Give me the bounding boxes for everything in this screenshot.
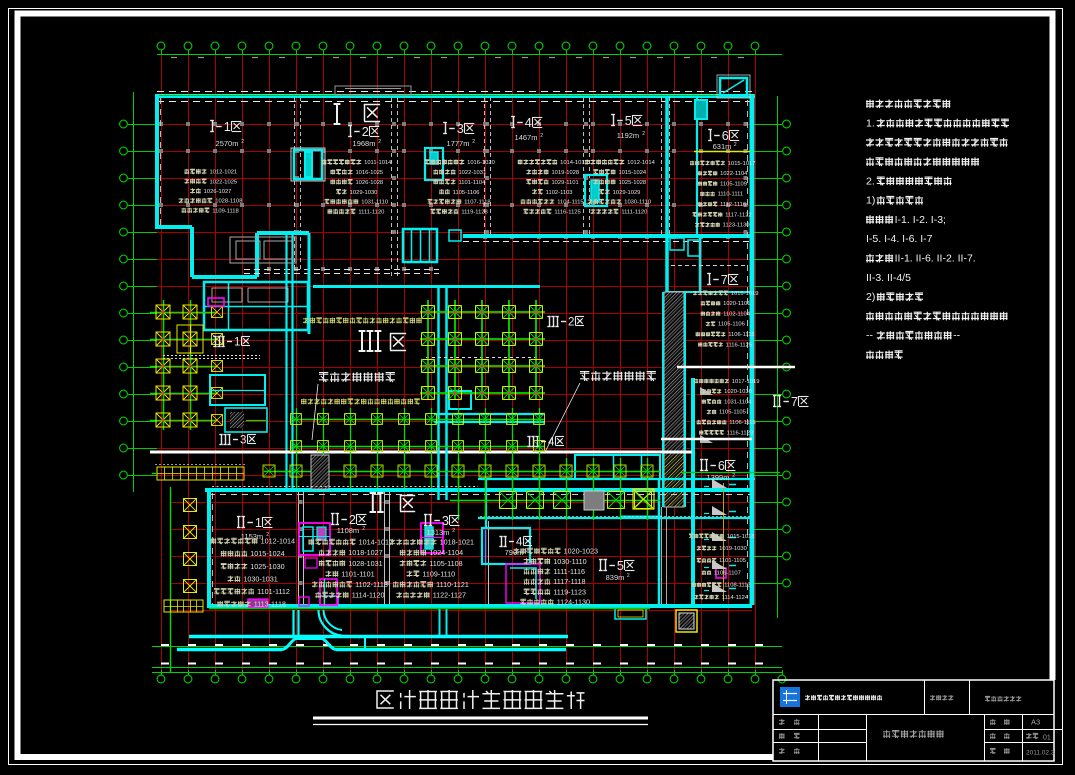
svg-text:1020-1023: 1020-1023	[564, 547, 598, 556]
svg-text:1124-1130: 1124-1130	[557, 598, 590, 607]
svg-text:--: --	[866, 330, 873, 342]
svg-text:1105-1109: 1105-1109	[720, 181, 747, 187]
svg-text:1105-1108: 1105-1108	[429, 559, 462, 568]
svg-text:1014-1018: 1014-1018	[560, 160, 588, 166]
svg-text:1123-1130: 1123-1130	[723, 223, 750, 229]
svg-text:2011.02.3: 2011.02.3	[1026, 750, 1055, 757]
svg-text:1): 1)	[866, 195, 875, 207]
svg-text:1107-1118: 1107-1118	[464, 200, 490, 206]
svg-text:2: 2	[734, 142, 737, 148]
svg-text:2: 2	[627, 573, 630, 579]
svg-text:I-1. I-2. I-3;: I-1. I-2. I-3;	[895, 214, 946, 226]
svg-text:1022-1104: 1022-1104	[720, 171, 748, 177]
svg-text:2: 2	[362, 526, 365, 532]
svg-text:4: 4	[525, 116, 532, 130]
svg-text:2: 2	[568, 317, 574, 329]
svg-text:1119-1128: 1119-1128	[461, 210, 487, 216]
svg-text:1014-1017: 1014-1017	[359, 538, 393, 547]
svg-text:1110-1111: 1110-1111	[718, 192, 744, 198]
svg-text:1030-1110: 1030-1110	[624, 200, 651, 206]
svg-text:1030-1031: 1030-1031	[243, 574, 277, 583]
svg-text:2: 2	[349, 513, 356, 527]
svg-text:1016-1020: 1016-1020	[467, 160, 495, 166]
svg-text:1122-1127: 1122-1127	[433, 591, 466, 600]
svg-text:1111-1120: 1111-1120	[358, 210, 384, 216]
svg-text:1018-1021: 1018-1021	[440, 538, 474, 547]
svg-text:2570m: 2570m	[216, 139, 239, 148]
svg-text:I-5. I-4. I-6. I-7: I-5. I-4. I-6. I-7	[866, 233, 933, 245]
svg-text:1192m: 1192m	[617, 131, 639, 140]
svg-text:1116-1123: 1116-1123	[727, 430, 753, 436]
svg-text:1011-1014: 1011-1014	[364, 160, 392, 166]
svg-text:3: 3	[240, 435, 246, 447]
svg-text:1108m: 1108m	[337, 526, 359, 535]
svg-text:1102-1103: 1102-1103	[546, 190, 573, 196]
svg-text:1108-1113: 1108-1113	[724, 583, 750, 589]
svg-text:1012-1014: 1012-1014	[627, 160, 655, 166]
svg-text:1: 1	[234, 337, 240, 349]
svg-text:1101-1112: 1101-1112	[257, 587, 290, 596]
svg-text:1016-1019: 1016-1019	[731, 291, 759, 297]
svg-text:2: 2	[378, 139, 381, 145]
svg-text:2: 2	[642, 131, 645, 137]
svg-text:1020-1101: 1020-1101	[723, 301, 750, 307]
svg-text:1114-1120: 1114-1120	[352, 591, 385, 600]
svg-text:1116-1125: 1116-1125	[726, 342, 752, 348]
svg-text:4: 4	[516, 537, 523, 549]
svg-text:1031-1104: 1031-1104	[724, 399, 752, 405]
svg-text:1030-1110: 1030-1110	[553, 557, 586, 566]
svg-text:1031-1110: 1031-1110	[361, 200, 388, 206]
svg-text:2: 2	[362, 125, 369, 139]
svg-text:1101-1104: 1101-1104	[458, 180, 486, 186]
svg-text:1015-1024: 1015-1024	[250, 549, 284, 558]
svg-text:II-1. II-6. II-2. II-7.: II-1. II-6. II-2. II-7.	[895, 253, 976, 265]
svg-text:2.: 2.	[866, 175, 875, 187]
svg-text:A3: A3	[1031, 718, 1040, 727]
svg-text:1399m: 1399m	[707, 473, 730, 482]
svg-text:1110-1121: 1110-1121	[436, 580, 469, 589]
svg-text:1015-1018: 1015-1018	[727, 534, 755, 540]
svg-text:1019-1028: 1019-1028	[551, 170, 579, 176]
svg-text:1467m: 1467m	[515, 133, 538, 142]
svg-text:1104-1115: 1104-1115	[557, 200, 583, 206]
svg-text:1015-1024: 1015-1024	[618, 170, 646, 176]
svg-text:1105-1106: 1105-1106	[453, 190, 480, 196]
svg-text:1968m: 1968m	[353, 139, 376, 148]
svg-text:5: 5	[625, 114, 632, 128]
svg-text:1026-1027: 1026-1027	[204, 189, 232, 195]
svg-text:2: 2	[241, 139, 244, 145]
svg-text:1022-1031: 1022-1031	[458, 170, 486, 176]
svg-text:7: 7	[791, 395, 798, 409]
svg-text:1017-1019: 1017-1019	[732, 379, 760, 385]
svg-text:1111-1120: 1111-1120	[621, 210, 647, 216]
svg-text:2): 2)	[866, 291, 875, 303]
svg-text:1024-1104: 1024-1104	[429, 548, 463, 557]
svg-text:1101-1101: 1101-1101	[341, 569, 374, 578]
svg-text:1025-1028: 1025-1028	[618, 180, 646, 186]
svg-text:1015-1017: 1015-1017	[728, 161, 756, 167]
svg-text:839m: 839m	[606, 573, 625, 582]
svg-text:1026-1028: 1026-1028	[355, 180, 383, 186]
svg-text:6: 6	[718, 459, 725, 473]
svg-text:1028-1108: 1028-1108	[215, 199, 242, 205]
svg-text:1012-1021: 1012-1021	[209, 170, 237, 176]
svg-text:4: 4	[548, 437, 555, 449]
svg-text:1113-1118: 1113-1118	[254, 600, 286, 609]
svg-text:1029-1030: 1029-1030	[350, 190, 378, 196]
svg-text:1116-1125: 1116-1125	[554, 210, 580, 216]
svg-text:1117-1122: 1117-1122	[725, 212, 751, 218]
svg-text:01: 01	[1043, 735, 1051, 742]
svg-text:1025-1030: 1025-1030	[250, 562, 284, 571]
svg-text:II-3. II-4/5: II-3. II-4/5	[866, 272, 911, 284]
svg-text:3: 3	[442, 514, 449, 528]
svg-text:1777m: 1777m	[447, 139, 470, 148]
svg-text:1: 1	[255, 516, 262, 530]
svg-text:1.: 1.	[866, 117, 875, 129]
svg-text:1022-1025: 1022-1025	[209, 179, 237, 185]
svg-text:1029-1029: 1029-1029	[613, 190, 641, 196]
svg-text:1313m: 1313m	[427, 528, 450, 537]
svg-text:1102-1113: 1102-1113	[355, 580, 388, 589]
svg-text:1114-1124: 1114-1124	[722, 595, 749, 601]
svg-text:--: --	[953, 330, 960, 342]
svg-text:1028-1031: 1028-1031	[348, 559, 382, 568]
svg-text:2: 2	[472, 139, 475, 145]
svg-text:7: 7	[721, 273, 728, 287]
svg-text:1029-1101: 1029-1101	[551, 180, 578, 186]
svg-text:631m: 631m	[713, 142, 732, 151]
svg-text:1020-1030: 1020-1030	[724, 389, 752, 395]
svg-text:1112-1116: 1112-1116	[720, 202, 746, 208]
svg-text:1109-1110: 1109-1110	[422, 569, 455, 578]
svg-text:1105-1106: 1105-1106	[718, 322, 745, 328]
svg-text:1111-1116: 1111-1116	[553, 567, 585, 576]
svg-text:6: 6	[722, 129, 729, 143]
svg-text:1101-1105: 1101-1105	[719, 558, 746, 564]
svg-text:1106-1115: 1106-1115	[729, 420, 755, 426]
svg-text:1117-1118: 1117-1118	[553, 577, 585, 586]
svg-text:1102-1104: 1102-1104	[723, 311, 751, 317]
svg-text:1109-1118: 1109-1118	[212, 208, 238, 214]
svg-text:2: 2	[732, 473, 735, 479]
svg-text:3: 3	[457, 122, 464, 136]
svg-text:5: 5	[617, 559, 624, 573]
svg-text:1106-1115: 1106-1115	[728, 332, 754, 338]
svg-text:1: 1	[224, 120, 231, 134]
svg-text:2: 2	[540, 133, 543, 139]
svg-text:1106-1107: 1106-1107	[714, 570, 741, 576]
svg-text:1119-1123: 1119-1123	[553, 587, 586, 596]
svg-text:1105-1105: 1105-1105	[719, 410, 746, 416]
svg-text:1016-1025: 1016-1025	[355, 170, 383, 176]
svg-text:1019-1030: 1019-1030	[719, 546, 747, 552]
svg-text:1012-1014: 1012-1014	[261, 537, 295, 546]
svg-text:2: 2	[452, 528, 455, 534]
svg-text:1018-1027: 1018-1027	[348, 548, 382, 557]
